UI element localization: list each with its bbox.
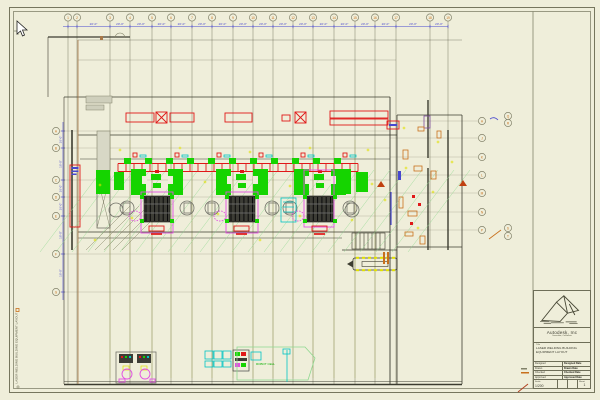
drawing-title-line2: EQUIPMENT LAYOUT (536, 350, 588, 354)
svg-text:LASER WELDING BUILDING EQUIPME: LASER WELDING BUILDING EQUIPMENT LAYOUT (15, 312, 19, 383)
svg-text:16'-0": 16'-0" (59, 203, 63, 211)
svg-text:9: 9 (232, 16, 234, 20)
svg-text:5: 5 (151, 16, 153, 20)
svg-text:20'-0": 20'-0" (361, 22, 369, 26)
annex-rooms (100, 33, 501, 264)
welding-stations (120, 169, 357, 235)
svg-text:20'-0": 20'-0" (341, 22, 349, 26)
svg-text:18: 18 (428, 16, 432, 20)
svg-text:2: 2 (76, 16, 78, 20)
svg-text:20'-0": 20'-0" (137, 22, 145, 26)
svg-text:20'-0": 20'-0" (299, 22, 307, 26)
svg-text:16'-0": 16'-0" (59, 269, 63, 277)
svg-text:20'-0": 20'-0" (158, 22, 166, 26)
svg-text:16'-0": 16'-0" (59, 160, 63, 168)
svg-text:20'-0": 20'-0" (382, 22, 390, 26)
svg-text:B: B (55, 146, 57, 150)
svg-text:E: E (55, 214, 57, 218)
svg-text:3: 3 (109, 16, 111, 20)
mouse-cursor (17, 21, 27, 36)
svg-text:16'-0": 16'-0" (59, 231, 63, 239)
svg-text:7: 7 (191, 16, 193, 20)
svg-text:20'-0": 20'-0" (259, 22, 267, 26)
svg-text:13: 13 (311, 16, 315, 20)
bottom-machine-a (116, 352, 156, 383)
svg-text:M: M (481, 191, 484, 195)
svg-text:20'-0": 20'-0" (435, 22, 443, 26)
crane-bridge-symbol (347, 257, 397, 271)
svg-text:20'-0": 20'-0" (219, 22, 227, 26)
svg-text:20'-0": 20'-0" (198, 22, 206, 26)
svg-text:16'-0": 16'-0" (59, 136, 63, 144)
svg-text:19: 19 (446, 16, 450, 20)
svg-text:L: L (481, 173, 483, 177)
svg-text:P: P (481, 228, 483, 232)
scale-sheet-row: Scale 1/200 Sheet 1 (534, 380, 590, 388)
scale-value: 1/200 (535, 384, 557, 388)
bottom-machine-b: ROBOT CELL (205, 347, 315, 382)
svg-text:F: F (55, 252, 57, 256)
svg-text:20'-0": 20'-0" (279, 22, 287, 26)
svg-text:20'-0": 20'-0" (178, 22, 186, 26)
svg-text:20'-0": 20'-0" (409, 22, 417, 26)
crane-rail (118, 153, 358, 172)
edge-annotations: LASER WELDING BUILDING EQUIPMENT LAYOUT (14, 31, 20, 389)
svg-text:17: 17 (394, 16, 398, 20)
svg-text:16'-0": 16'-0" (59, 185, 63, 193)
drawing-sheet: 20'-0"20'-0"20'-0"20'-0"20'-0"20'-0"20'-… (0, 0, 600, 400)
left-equipment (86, 96, 124, 228)
rev-box-1 (557, 380, 567, 388)
svg-text:12: 12 (291, 16, 295, 20)
svg-text:20'-0": 20'-0" (239, 22, 247, 26)
svg-text:S: S (507, 226, 509, 230)
sheet-value: 1 (579, 383, 590, 387)
svg-text:T: T (507, 234, 509, 238)
svg-text:15: 15 (353, 16, 357, 20)
svg-text:6: 6 (170, 16, 172, 20)
svg-text:11: 11 (271, 16, 275, 20)
grid-bubbles: 12345678910111213141516171819ABCDEFGHJKL… (52, 14, 511, 296)
autodesk-logo (534, 291, 590, 328)
svg-text:20'-0": 20'-0" (320, 22, 328, 26)
rev-box-2 (567, 380, 577, 388)
svg-text:10: 10 (251, 16, 255, 20)
svg-text:1: 1 (67, 16, 69, 20)
svg-text:20'-0": 20'-0" (116, 22, 124, 26)
svg-text:4: 4 (129, 16, 131, 20)
svg-text:8: 8 (211, 16, 213, 20)
title-block: Autodesk, Inc Sausalito, California Titl… (533, 290, 591, 389)
svg-text:14: 14 (332, 16, 336, 20)
company-address: Sausalito, California (534, 335, 590, 337)
svg-text:16: 16 (373, 16, 377, 20)
floor-plan-canvas[interactable]: 20'-0"20'-0"20'-0"20'-0"20'-0"20'-0"20'-… (0, 0, 600, 400)
svg-text:20'-0": 20'-0" (90, 22, 98, 26)
machine-label: ROBOT CELL (256, 362, 275, 366)
